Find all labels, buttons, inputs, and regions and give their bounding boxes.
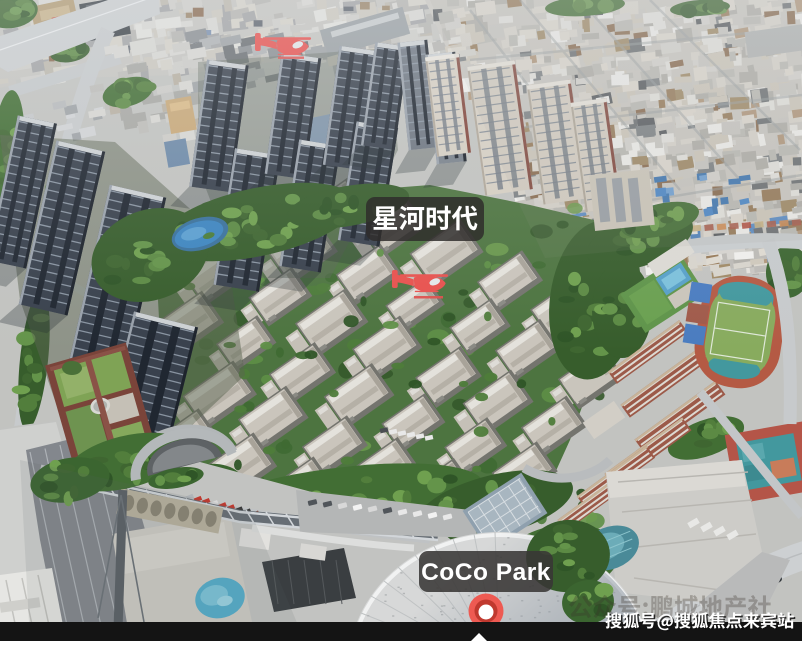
svg-text:CoCo Park: CoCo Park [421, 559, 551, 586]
